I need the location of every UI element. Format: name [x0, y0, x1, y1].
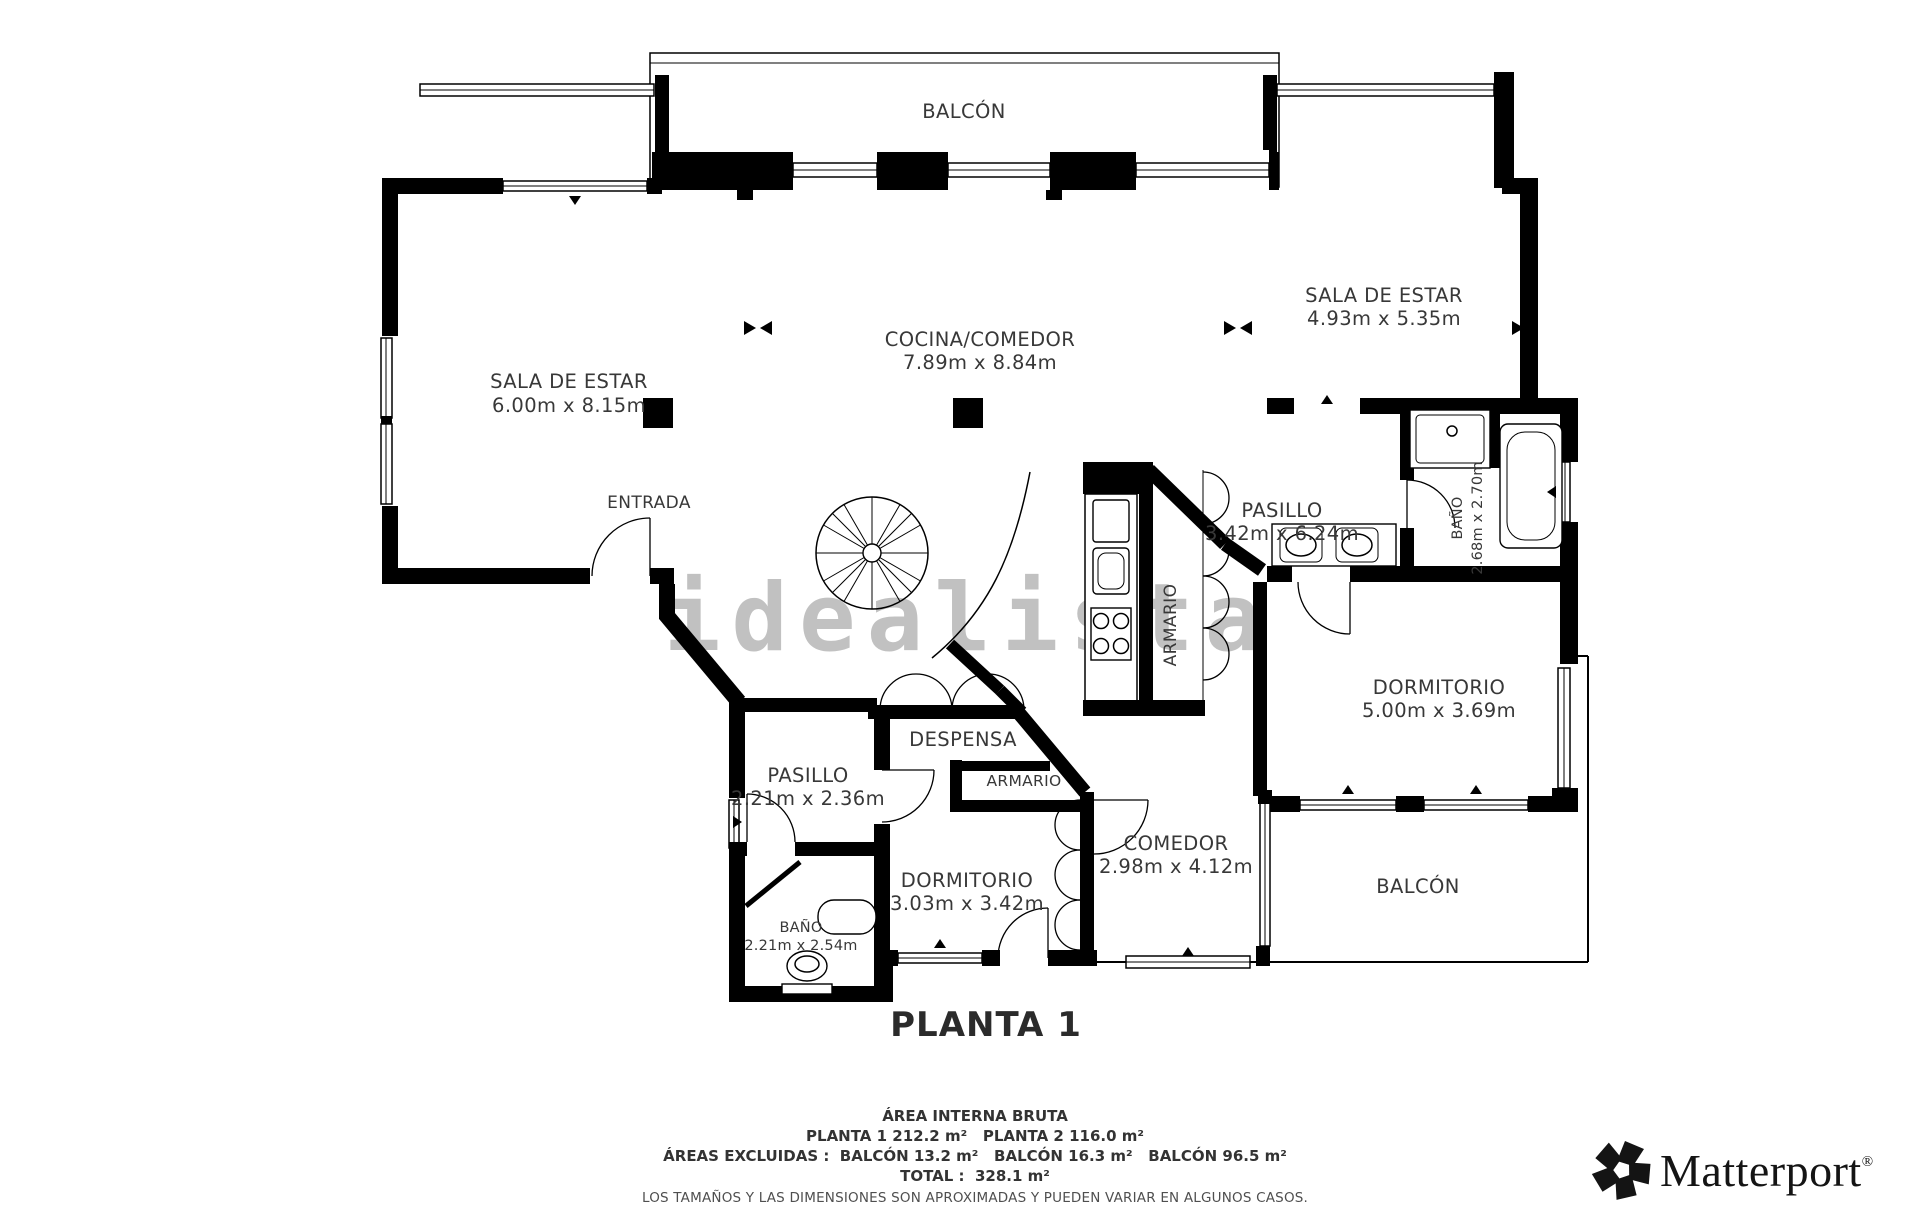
room-dims-pasillo-left: 2.21m x 2.36m	[731, 787, 885, 810]
room-dims-bano-left: 2.21m x 2.54m	[744, 938, 857, 954]
room-dims-dormitorio-right: 5.00m x 3.69m	[1362, 699, 1516, 722]
sink-left	[818, 900, 876, 934]
pillar	[953, 398, 983, 428]
room-label-cocina-comedor: COCINA/COMEDOR	[885, 328, 1075, 351]
bathtub	[1500, 424, 1562, 548]
room-label-balcon-top: BALCÓN	[922, 99, 1006, 123]
summary-disclaimer: LOS TAMAÑOS Y LAS DIMENSIONES SON APROXI…	[642, 1189, 1308, 1206]
room-label-armario-core: ARMARIO	[1161, 584, 1181, 667]
room-label-pasillo-right: PASILLO	[1241, 499, 1322, 522]
summary-line-plantas: PLANTA 1 212.2 m² PLANTA 2 116.0 m²	[806, 1127, 1144, 1145]
floor-plan-svg: idealista	[0, 0, 1920, 1208]
spiral-staircase	[816, 497, 928, 609]
room-label-armario-small: ARMARIO	[987, 772, 1062, 790]
summary-line-excluidas: ÁREAS EXCLUIDAS : BALCÓN 13.2 m² BALCÓN …	[663, 1146, 1287, 1165]
pillar	[643, 398, 673, 428]
room-dims-dormitorio-left: 3.03m x 3.42m	[890, 892, 1044, 915]
summary-title: ÁREA INTERNA BRUTA	[882, 1106, 1068, 1125]
room-label-despensa: DESPENSA	[909, 728, 1017, 751]
room-dims-cocina-comedor: 7.89m x 8.84m	[903, 351, 1057, 374]
shower-right	[1410, 410, 1490, 468]
floor-title: PLANTA 1	[890, 1005, 1082, 1045]
room-label-comedor: COMEDOR	[1124, 832, 1229, 855]
registered-mark: ®	[1862, 1154, 1874, 1170]
room-dims-sala-right: 4.93m x 5.35m	[1307, 307, 1461, 330]
room-label-pasillo-left: PASILLO	[767, 764, 848, 787]
summary-line-total: TOTAL : 328.1 m²	[900, 1167, 1050, 1185]
matterport-wordmark: Matterport	[1660, 1145, 1862, 1196]
room-label-sala-right: SALA DE ESTAR	[1305, 284, 1463, 307]
room-dims-pasillo-right: 3.42m x 6.24m	[1205, 522, 1359, 545]
room-dims-comedor: 2.98m x 4.12m	[1099, 855, 1253, 878]
room-label-dormitorio-left: DORMITORIO	[901, 869, 1033, 892]
room-label-bano-left: BAÑO	[780, 919, 823, 936]
room-dims-sala-left: 6.00m x 8.15m	[492, 394, 646, 417]
room-dims-bano-right: 2.68m x 2.70m	[1470, 461, 1486, 574]
floor-plan-page: idealista	[0, 0, 1920, 1208]
stove	[1091, 608, 1131, 660]
room-label-entrada: ENTRADA	[607, 493, 691, 513]
room-label-sala-left: SALA DE ESTAR	[490, 370, 648, 393]
room-label-dormitorio-right: DORMITORIO	[1373, 676, 1505, 699]
matterport-logo-text: Matterport®	[1660, 1145, 1874, 1196]
room-label-balcon-bottom: BALCÓN	[1376, 874, 1460, 898]
kitchen-appliance	[1093, 500, 1129, 542]
room-label-bano-right: BAÑO	[1449, 497, 1466, 540]
